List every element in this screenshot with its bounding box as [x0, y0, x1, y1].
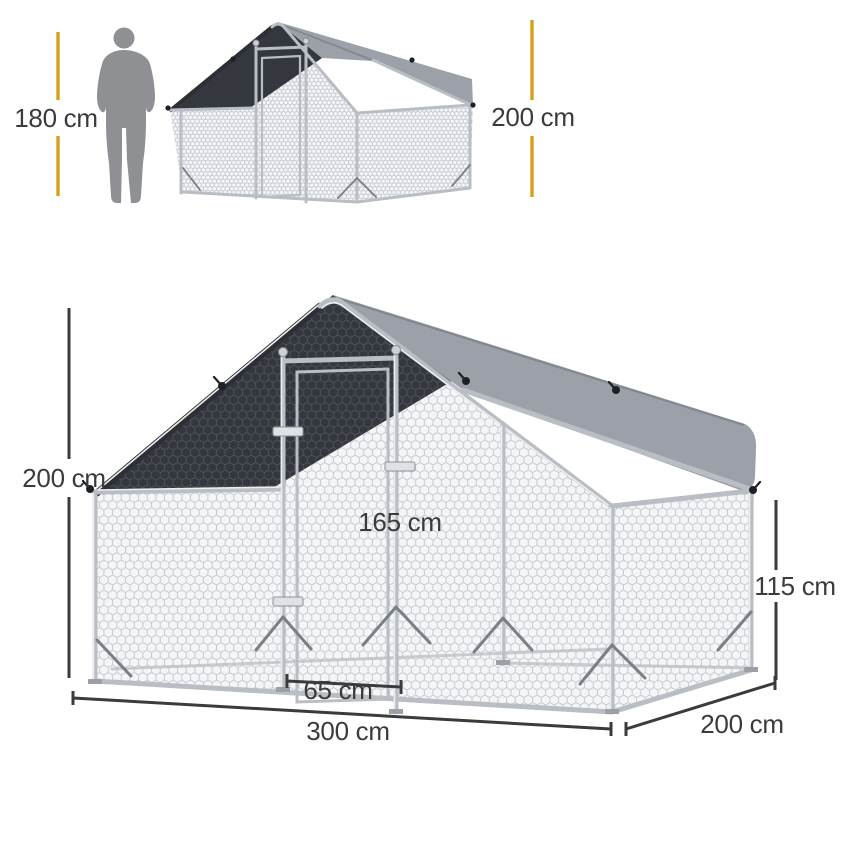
door-latch [385, 462, 415, 471]
small-coop-height-dimension: 200 cm [491, 20, 574, 197]
product-dimension-diagram: 180 cm [0, 0, 852, 852]
small-coop-height-label: 200 cm [491, 102, 574, 132]
length-label: 300 cm [306, 716, 389, 746]
side-wall-height-label: 115 cm [754, 571, 836, 601]
human-height-label: 180 cm [14, 103, 97, 133]
human-silhouette-icon [97, 28, 155, 204]
small-coop-illustration [165, 22, 475, 202]
door-height-label: 165 cm [358, 507, 441, 537]
door-width-label: 65 cm [303, 675, 372, 705]
diagram-canvas: 180 cm [0, 0, 852, 852]
door-hinge [273, 427, 303, 436]
side-wall-height-dimension: 115 cm [754, 500, 836, 680]
main-coop-illustration [83, 295, 760, 714]
peak-height-label: 200 cm [22, 463, 105, 493]
scale-section: 180 cm [14, 20, 574, 203]
door-height-dimension: 165 cm [358, 507, 441, 537]
depth-label: 200 cm [700, 709, 783, 739]
human-height-dimension: 180 cm [14, 32, 97, 196]
door-hinge [273, 597, 303, 606]
